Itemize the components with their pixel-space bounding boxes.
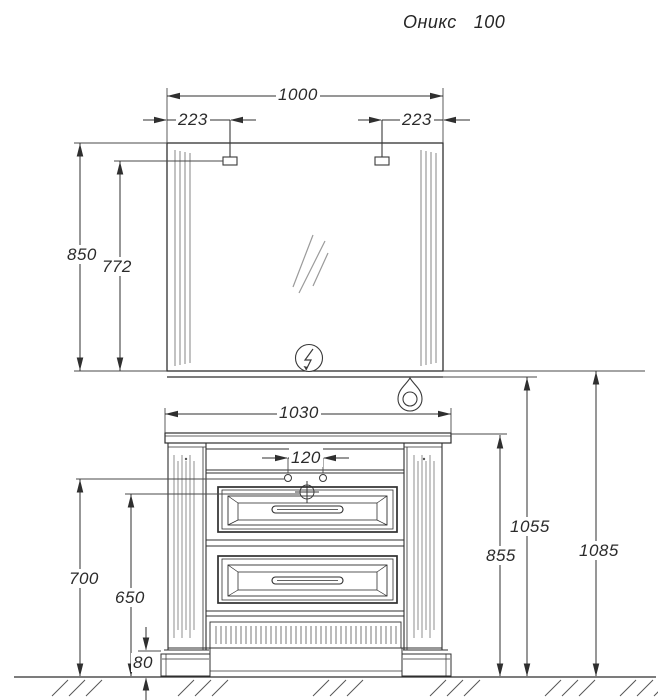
mirror-reflection-strokes (293, 235, 328, 293)
plinth-foot-left (161, 650, 210, 676)
water-drop-icon (398, 378, 422, 411)
drawer-top-handle (272, 506, 343, 513)
drawer-bottom-handle (272, 577, 343, 584)
floor-hatching (52, 680, 658, 696)
pilaster-right (404, 443, 442, 650)
dim-plinth-height-label: 80 (131, 653, 155, 672)
dim-lamp-offset-right-label: 223 (400, 110, 434, 129)
power-outlet-icon (296, 345, 323, 372)
dim-mirror-bottom-height-label: 1055 (508, 517, 552, 536)
mirror-column-right (421, 150, 436, 366)
plinth-base (168, 648, 442, 671)
dim-faucet-spacing-label: 120 (289, 448, 323, 467)
dim-cabinet-width-label: 1030 (277, 403, 321, 422)
dim-mirror-width-label: 1000 (276, 85, 320, 104)
apron-grille (210, 622, 401, 648)
faucet-holes (285, 475, 327, 482)
dimension-lines (80, 96, 596, 676)
mid-rail (206, 540, 404, 546)
dim-drain-line-height-label: 650 (113, 588, 147, 607)
drawing-linework (0, 0, 658, 700)
countertop (165, 433, 451, 443)
product-name: Оникс (403, 12, 457, 34)
product-model: 100 (474, 12, 506, 34)
technical-drawing-canvas: Оникс 100 (0, 0, 658, 700)
drawing-title: Оникс 100 (403, 12, 505, 34)
dim-faucet-line-height-label: 700 (67, 569, 101, 588)
bottom-rail (206, 611, 404, 616)
dim-mirror-height-label: 850 (65, 245, 99, 264)
drain-center-mark (295, 481, 319, 503)
dim-lamp-height-label: 772 (100, 257, 134, 276)
dim-countertop-height-label: 855 (484, 546, 518, 565)
mirror-column-left (175, 150, 190, 366)
dimension-arrows (80, 96, 596, 700)
plinth-foot-right (402, 650, 451, 676)
dim-mirror-frame-height-label: 1085 (577, 541, 621, 560)
mirror-outline (167, 143, 443, 377)
dim-lamp-offset-left-label: 223 (176, 110, 210, 129)
extension-lines (74, 88, 645, 651)
